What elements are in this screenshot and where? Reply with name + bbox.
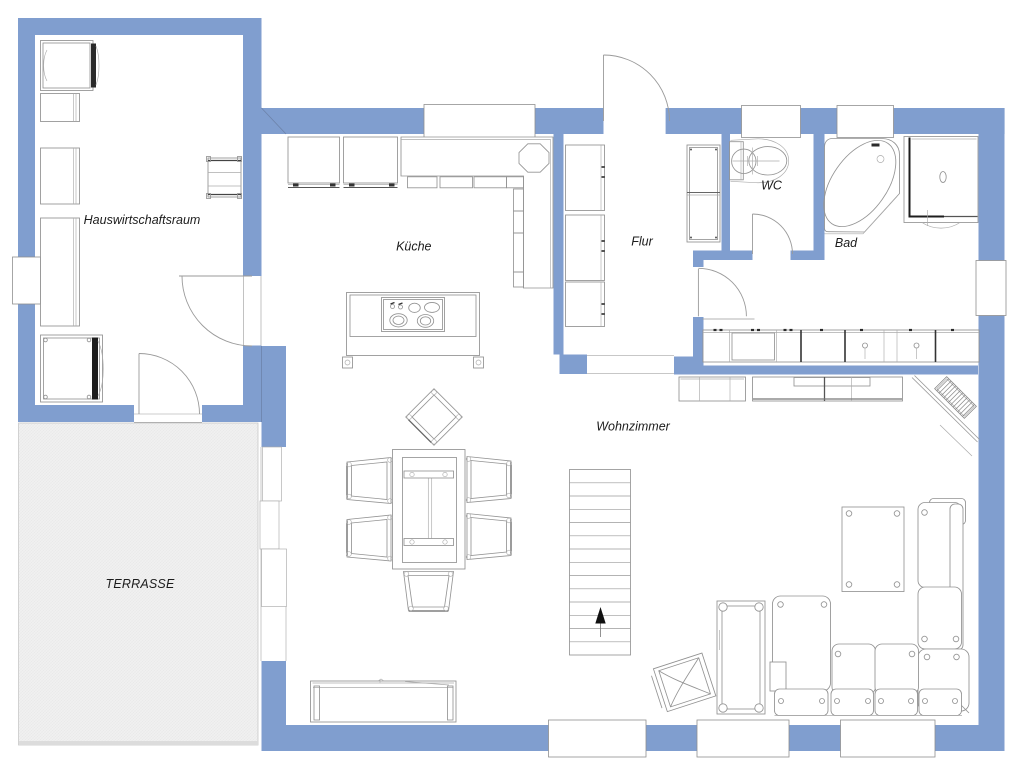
svg-text:Küche: Küche — [396, 240, 431, 254]
svg-text:TERRASSE: TERRASSE — [106, 577, 175, 591]
svg-text:Bad: Bad — [835, 236, 858, 250]
svg-text:Wohnzimmer: Wohnzimmer — [596, 420, 670, 434]
svg-text:WC: WC — [761, 179, 783, 193]
svg-text:Hauswirtschaftsraum: Hauswirtschaftsraum — [84, 213, 201, 227]
svg-text:Flur: Flur — [631, 235, 653, 249]
